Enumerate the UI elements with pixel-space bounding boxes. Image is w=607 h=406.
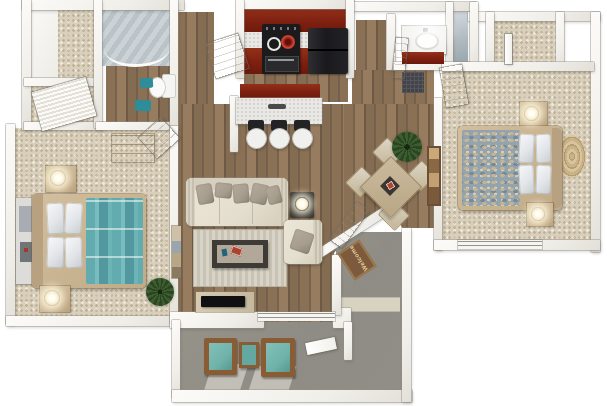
living-wall-art bbox=[172, 226, 181, 278]
bedroom2-closet-door bbox=[505, 34, 512, 64]
bedroom2-pillow-3 bbox=[518, 165, 534, 195]
bedroom2-pillow-2 bbox=[535, 134, 551, 164]
coffee-table-item bbox=[221, 249, 227, 257]
sofa-pillow-2 bbox=[214, 182, 232, 199]
wall-patio-top-stub bbox=[344, 322, 352, 360]
wall-kitchen-top bbox=[238, 0, 354, 9]
refrigerator-divider bbox=[308, 49, 348, 51]
dresser-decor-frame bbox=[19, 206, 32, 232]
vanity-faucet bbox=[423, 28, 428, 32]
lounge-chair-2-cushion bbox=[266, 343, 290, 372]
wall-patio-left bbox=[172, 320, 180, 398]
bedroom2-lamp-top bbox=[524, 106, 539, 121]
stool-seat-2 bbox=[269, 128, 290, 149]
floorplan-canvas: Welcome bbox=[0, 0, 607, 406]
wall-shower2-right bbox=[470, 2, 478, 68]
master-pillow-2 bbox=[64, 203, 83, 235]
master-pillow-4 bbox=[64, 237, 82, 269]
bedroom2-duvet-patterned bbox=[462, 130, 520, 206]
walkin-closet-wall-face bbox=[30, 6, 58, 80]
bath-mat-2 bbox=[135, 100, 152, 112]
bedroom2-pillow-1 bbox=[518, 134, 534, 164]
patio-side-table-top bbox=[242, 345, 256, 365]
oven-handle bbox=[268, 59, 294, 61]
wall-entry-left-stub bbox=[332, 255, 341, 315]
wall-bath1-left bbox=[94, 0, 102, 128]
sofa-arm-left bbox=[186, 178, 195, 226]
laundry-dark-mat bbox=[402, 72, 424, 93]
kitchen-refrigerator bbox=[308, 28, 348, 74]
bedroom2-headboard bbox=[552, 128, 562, 208]
bedroom2-window bbox=[458, 240, 542, 249]
lounge-chair-1-cushion bbox=[209, 343, 232, 370]
wall-living-bottom bbox=[170, 312, 264, 328]
wall-top-left-outer bbox=[22, 0, 184, 10]
vanity-sink bbox=[415, 32, 439, 50]
stool-seat-1 bbox=[246, 128, 267, 149]
wall-bath1-right bbox=[170, 0, 178, 130]
master-lamp-top bbox=[50, 170, 66, 186]
wall-bath2-top bbox=[352, 2, 476, 11]
side-table-lamp bbox=[295, 197, 309, 211]
walkin-closet-floor bbox=[56, 8, 96, 80]
dresser-decor-red-dot bbox=[24, 248, 28, 252]
dresser-decor-dark bbox=[20, 242, 32, 262]
dining-wall-art bbox=[427, 146, 441, 206]
patio-lounge-chair-1 bbox=[204, 338, 237, 375]
range-burner-red bbox=[281, 35, 295, 49]
wall-bedroom2-top bbox=[442, 62, 594, 71]
master-duvet-teal bbox=[86, 198, 143, 284]
tv bbox=[201, 296, 245, 307]
hall-right-floor-vertical bbox=[356, 20, 386, 76]
bedroom2-lamp-bottom bbox=[531, 207, 545, 221]
wall-bedroom2-closet-right bbox=[556, 12, 564, 68]
sofa-pillow-3 bbox=[232, 183, 250, 204]
master-pillow-3 bbox=[46, 237, 64, 269]
bedroom2-round-jute-rug bbox=[558, 135, 586, 178]
wall-entry-right bbox=[402, 228, 411, 402]
master-pillow-1 bbox=[46, 203, 65, 235]
wall-bedroom2-closet-left bbox=[486, 12, 494, 68]
living-sliding-glass-door bbox=[258, 312, 335, 321]
bath-mat-1 bbox=[140, 78, 154, 89]
wall-right-outer bbox=[591, 12, 600, 252]
bathroom2-vanity-cabinet bbox=[402, 52, 444, 64]
wall-patio-bottom bbox=[172, 390, 412, 402]
range-knobs bbox=[266, 27, 296, 30]
range-oven-door bbox=[265, 56, 299, 72]
master-lamp-bottom bbox=[44, 290, 60, 306]
sofa-pillow-1 bbox=[195, 183, 214, 205]
bar-sink bbox=[268, 104, 286, 109]
wall-master-bottom bbox=[6, 316, 182, 326]
dining-potted-plant bbox=[392, 132, 422, 162]
bedroom2-pillow-4 bbox=[535, 165, 551, 195]
wall-shower2-left bbox=[446, 2, 453, 66]
bathroom2-vanity bbox=[402, 26, 446, 54]
range-burner-white bbox=[267, 37, 281, 51]
wall-left-closet-outer bbox=[22, 0, 31, 130]
armchair-back bbox=[313, 220, 322, 264]
kitchen-range bbox=[262, 24, 300, 74]
bedroom2-closet-floor bbox=[494, 20, 556, 64]
wall-left-master-outer bbox=[6, 124, 15, 324]
master-bed-headboard bbox=[32, 194, 43, 288]
patio-lounge-chair-2 bbox=[261, 338, 295, 377]
bar-cabinet-front bbox=[240, 84, 320, 98]
master-potted-plant bbox=[146, 278, 174, 306]
stool-seat-3 bbox=[292, 128, 313, 149]
patio-side-table bbox=[239, 342, 259, 368]
